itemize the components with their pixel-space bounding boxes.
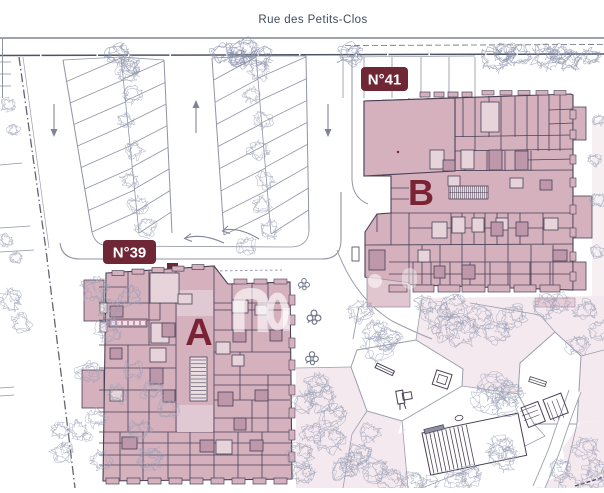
svg-text:B: B bbox=[408, 172, 434, 213]
svg-text:A: A bbox=[185, 312, 212, 354]
svg-text:N°41: N°41 bbox=[368, 72, 402, 89]
svg-text:Rue des Petits-Clos: Rue des Petits-Clos bbox=[258, 14, 367, 26]
svg-text:N°39: N°39 bbox=[113, 245, 147, 262]
